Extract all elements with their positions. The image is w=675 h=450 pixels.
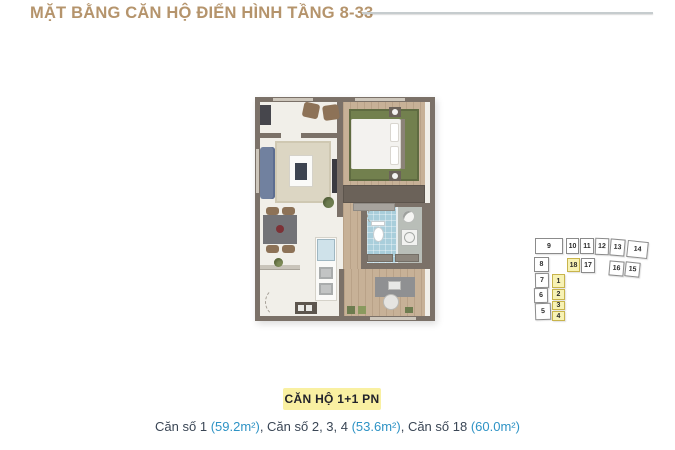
caption-area-value: (60.0m²) xyxy=(471,419,520,434)
unit-cell-2: 2 xyxy=(552,289,565,300)
dining-chair-2 xyxy=(282,207,295,215)
caption-unit-text: , Căn số 18 xyxy=(401,419,471,434)
unit-cell-11: 11 xyxy=(580,238,594,254)
kitchen-sink-1 xyxy=(319,267,333,279)
unit-locator: 910111213148181716157651234 xyxy=(530,232,675,328)
unit-cell-8: 8 xyxy=(534,257,549,272)
living-plant xyxy=(323,197,334,208)
dining-chair-3 xyxy=(266,245,279,253)
washing-machine-drum xyxy=(404,232,415,243)
study-plant-3 xyxy=(405,307,413,313)
page-title: MẶT BẰNG CĂN HỘ ĐIỂN HÌNH TẦNG 8-33 xyxy=(30,4,373,23)
study-plant-1 xyxy=(347,306,355,314)
unit-cell-4: 4 xyxy=(552,311,565,321)
caption-unit-text: , Căn số 2, 3, 4 xyxy=(260,419,352,434)
shoe-cabinet-door-1 xyxy=(298,305,304,311)
caption-area-value: (59.2m²) xyxy=(211,419,260,434)
unit-cell-1: 1 xyxy=(552,274,565,288)
toilet-tank xyxy=(371,221,385,226)
bed-headboard xyxy=(401,119,405,169)
kitchen-sink-2 xyxy=(319,283,333,295)
study-plant-2 xyxy=(358,306,366,314)
nightstand-lamp-2 xyxy=(392,173,398,179)
caption: Căn số 1 (59.2m²), Căn số 2, 3, 4 (53.6m… xyxy=(0,419,675,434)
armchair-pouf-1 xyxy=(302,102,321,120)
bathroom-cabinet-2 xyxy=(395,254,419,262)
title-divider-line xyxy=(362,12,653,14)
entry-door-swing xyxy=(265,287,295,317)
window-study xyxy=(273,98,313,101)
wall-study-living-2 xyxy=(301,133,337,138)
floor-plan xyxy=(255,97,435,321)
caption-unit-text: Căn số 1 xyxy=(155,419,211,434)
bedroom-wardrobe xyxy=(343,185,425,203)
unit-cell-16: 16 xyxy=(608,260,624,276)
unit-type-badge: CĂN HỘ 1+1 PN xyxy=(283,388,381,410)
sofa xyxy=(260,147,275,199)
caption-area-value: (53.6m²) xyxy=(352,419,401,434)
wall-bathroom-bottom xyxy=(361,263,425,269)
shoe-cabinet-door-2 xyxy=(306,305,312,311)
unit-cell-14: 14 xyxy=(626,240,649,259)
unit-cell-15: 15 xyxy=(624,261,640,277)
shower-head xyxy=(402,210,415,223)
dining-chair-4 xyxy=(282,245,295,253)
unit-cell-3: 3 xyxy=(552,301,565,310)
unit-cell-18: 18 xyxy=(567,258,580,272)
desk-laptop xyxy=(388,281,401,290)
sideboard-plant xyxy=(274,258,283,267)
wall-entry-study xyxy=(339,269,344,316)
tv-cabinet xyxy=(260,105,271,125)
bed-pillow-2 xyxy=(390,146,399,165)
unit-cell-10: 10 xyxy=(566,238,579,254)
armchair-pouf-2 xyxy=(322,104,340,121)
bed-pillow-1 xyxy=(390,123,399,142)
desk-chair xyxy=(383,294,399,310)
tv-panel xyxy=(332,159,337,193)
nightstand-lamp-1 xyxy=(392,109,398,115)
unit-cell-5: 5 xyxy=(535,303,552,321)
unit-cell-12: 12 xyxy=(595,238,610,255)
unit-cell-6: 6 xyxy=(534,288,548,303)
dining-chair-1 xyxy=(266,207,279,215)
brochure-page: MẶT BẰNG CĂN HỘ ĐIỂN HÌNH TẦNG 8-33 xyxy=(0,0,675,450)
window-living xyxy=(256,149,259,193)
window-study-room xyxy=(370,317,416,320)
unit-cell-17: 17 xyxy=(581,258,595,273)
toilet-bowl xyxy=(373,227,384,242)
bathroom-cabinet-1 xyxy=(367,254,393,262)
unit-cell-13: 13 xyxy=(609,238,625,256)
wall-study-living xyxy=(260,133,281,138)
dining-centerpiece xyxy=(276,225,284,233)
unit-cell-7: 7 xyxy=(535,273,549,288)
wall-right-thick xyxy=(422,203,430,269)
window-bedroom xyxy=(355,98,405,101)
unit-cell-9: 9 xyxy=(535,238,563,254)
fridge xyxy=(317,239,335,261)
coffee-table-art xyxy=(295,163,307,180)
